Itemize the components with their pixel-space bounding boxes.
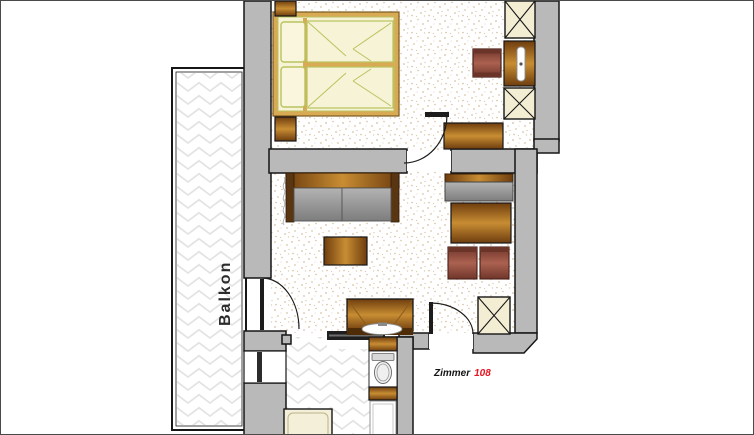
bench-backrest xyxy=(445,174,513,182)
stool-edge xyxy=(473,73,501,78)
sofa-cushion xyxy=(342,188,391,221)
pillow xyxy=(281,22,305,62)
wardrobe xyxy=(505,1,535,38)
balcony: Balkon xyxy=(172,68,246,430)
toilet-cistern xyxy=(372,354,394,361)
coffee-table xyxy=(324,237,367,265)
chair xyxy=(448,247,477,279)
shower-niche xyxy=(370,401,396,435)
pillow xyxy=(281,67,305,107)
sofa-backrest xyxy=(286,173,399,188)
entrance-door-opening xyxy=(429,334,473,349)
sofa-armrest xyxy=(286,173,294,222)
washbasin-vanity xyxy=(347,299,413,335)
right-wall-bedroom xyxy=(534,1,559,141)
bottom-wall-chamfered xyxy=(473,333,537,353)
balcony-label: Balkon xyxy=(217,261,234,326)
sofa xyxy=(286,173,399,222)
balcony-door-leaf xyxy=(260,279,264,330)
bathroom-cabinet xyxy=(369,387,397,400)
faucet-icon xyxy=(378,323,387,327)
room-number-text: 108 xyxy=(474,368,491,379)
balcony-tiles xyxy=(177,73,241,425)
left-wall-upper xyxy=(244,1,271,278)
tv-stand-dot xyxy=(519,62,522,65)
floorplan-svg: Balkon xyxy=(1,1,754,435)
left-wall-bathroom-upper xyxy=(244,331,286,351)
sofa-armrest xyxy=(391,173,399,222)
bathroom-right-wall xyxy=(397,337,413,435)
left-wall-bathroom-lower xyxy=(244,383,286,435)
stool-edge xyxy=(473,49,501,54)
toilet xyxy=(369,351,397,387)
bedroom-partition-wall-left xyxy=(269,149,407,173)
stool xyxy=(473,49,501,77)
bed-middle-rail xyxy=(304,62,394,67)
bathroom-cabinet xyxy=(369,337,397,351)
room-number-label: Zimmer108 xyxy=(433,368,491,379)
bathroom-doorway-floor xyxy=(286,337,327,349)
bedroom-door-leaf xyxy=(425,112,449,117)
window-glass xyxy=(257,352,262,382)
room-label-text: Zimmer xyxy=(433,368,471,379)
right-wall-living xyxy=(515,149,537,333)
nightstand xyxy=(275,117,296,141)
wardrobe xyxy=(504,88,535,119)
window-frame xyxy=(244,351,286,383)
bathroom-window xyxy=(244,351,286,383)
tv-desk xyxy=(504,41,535,86)
entrance-door-leaf xyxy=(429,302,433,334)
bench-seat xyxy=(445,182,513,201)
double-bed xyxy=(273,12,399,116)
duvet xyxy=(307,67,393,108)
sofa-cushion xyxy=(294,188,342,221)
dining-table xyxy=(451,203,511,243)
floorplan-image: Balkon xyxy=(0,0,754,435)
hall-wardrobe xyxy=(478,297,510,334)
bathroom-door-jamb xyxy=(282,335,291,344)
duvet xyxy=(307,21,393,62)
bathtub xyxy=(284,409,332,435)
chair xyxy=(480,247,509,279)
nightstand xyxy=(275,1,296,16)
luggage-bench xyxy=(444,123,503,149)
